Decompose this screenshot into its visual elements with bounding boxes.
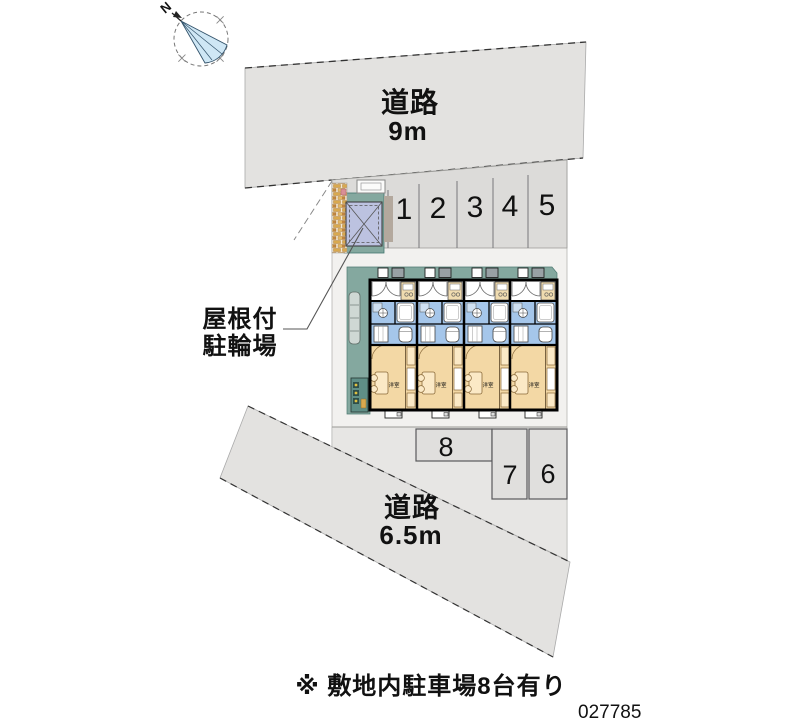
bicycle-shed-label-line2: 駐輪場 <box>203 332 278 360</box>
site-plan-canvas: 道路 9m N 1 2 3 4 5 <box>0 0 800 727</box>
site-plan-page: 道路 9m N 1 2 3 4 5 <box>0 0 800 727</box>
unit-2-room-label: 洋室 <box>435 381 447 389</box>
parking-space-3-label: 3 <box>467 191 484 224</box>
parking-space-4-label: 4 <box>502 190 519 223</box>
compass-rose-icon: N <box>157 0 228 66</box>
shed-side-pad <box>384 196 393 242</box>
road-top-width: 9m <box>388 116 428 146</box>
unit-1-room-label: 洋室 <box>388 381 400 389</box>
road-bottom-width: 6.5m <box>379 520 442 550</box>
parking-space-2-label: 2 <box>430 192 447 225</box>
brick-accent <box>341 189 346 195</box>
site-note: ※ 敷地内駐車場8台有り <box>295 672 566 700</box>
parking-space-7-label: 7 <box>502 460 517 490</box>
unit-4-room-label: 洋室 <box>528 381 540 389</box>
bicycle-shed-label-line1: 屋根付 <box>203 305 278 333</box>
road-top-label: 道路 <box>381 86 439 118</box>
building: 洋室 洋室 洋室 洋室 <box>370 268 557 418</box>
north-arrowhead <box>173 11 182 18</box>
parking-space-5-label: 5 <box>539 189 556 222</box>
boundary-extension-line <box>294 181 332 240</box>
parking-space-6-label: 6 <box>540 459 555 489</box>
compass-needle <box>181 21 227 63</box>
plan-number: 027785 <box>578 702 641 723</box>
road-bottom-label: 道路 <box>384 492 440 523</box>
unit-3-room-label: 洋室 <box>482 381 494 389</box>
bicycle-shed <box>332 180 393 253</box>
parking-space-1-label: 1 <box>396 193 413 226</box>
compass-north-label: N <box>157 0 174 16</box>
parking-space-8 <box>416 429 492 461</box>
parking-space-8-label: 8 <box>438 432 453 462</box>
